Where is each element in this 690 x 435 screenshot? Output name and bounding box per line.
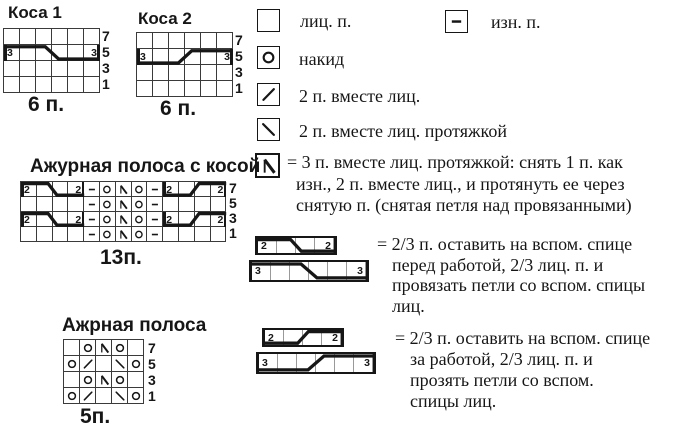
chart-cell — [68, 29, 84, 45]
chart-cell — [163, 227, 179, 242]
chart-cell — [169, 81, 185, 97]
chart-cell — [211, 197, 227, 212]
cable-front-symbol: 22 — [21, 212, 84, 227]
legend-text-line: провязать петли со вспом. спицы — [377, 275, 645, 296]
cable-end-bar — [97, 45, 100, 61]
chart-cell — [64, 340, 80, 356]
cable-digit: 2 — [332, 332, 338, 343]
row-number: 7 — [229, 181, 237, 196]
chart-cell — [195, 197, 211, 212]
cable-digit: 2 — [24, 184, 30, 195]
row-number: 5 — [148, 356, 156, 372]
cable-digit: 3 — [7, 48, 13, 59]
chart-cell — [68, 77, 84, 93]
cable-digit: 2 — [218, 184, 224, 195]
chart-cell — [21, 197, 37, 212]
legend-text-line: = 3 п. вместе лиц. протяжкой: снять 1 п.… — [287, 152, 632, 174]
chart-cell — [96, 356, 112, 372]
chart-cell — [84, 77, 100, 93]
chart-title-azhur: Ажрная полоса — [62, 315, 206, 337]
sk2p-icon — [117, 229, 129, 240]
legend-label-ssk: 2 п. вместе лиц. протяжкой — [299, 121, 507, 142]
yarn-over-icon — [82, 342, 94, 354]
chart-cell — [84, 212, 100, 227]
cable-back-symbol: 22 — [163, 182, 226, 197]
stitch-count-azhur: 5п. — [80, 405, 110, 429]
sk2p-icon — [117, 214, 129, 225]
purl-dash-icon — [149, 184, 161, 195]
chart-cell — [128, 372, 144, 388]
row-number: 1 — [229, 226, 237, 241]
legend-text-line: изн., 2 п. вместе лиц., и протянуть ее ч… — [287, 174, 632, 196]
cable-back-bar-4: 22 — [262, 328, 344, 347]
legend-text-line: снятую п. (снятая петля над провязанными… — [287, 195, 632, 217]
cable-digit: 2 — [325, 240, 331, 251]
sk2p-icon — [98, 374, 110, 386]
cable-digit: 2 — [24, 214, 30, 225]
chart-cell — [80, 340, 96, 356]
row-number: 7 — [235, 32, 243, 48]
chart-cell — [96, 388, 112, 404]
row-number: 1 — [235, 80, 243, 96]
row-numbers-kosa1: 7531 — [102, 28, 110, 92]
stitch-count-kosa2: 6 п. — [160, 97, 196, 121]
purl-dash-icon — [149, 199, 161, 210]
chart-cell — [64, 388, 80, 404]
chart-cell — [100, 212, 116, 227]
chart-cell — [80, 372, 96, 388]
row-number: 3 — [102, 60, 110, 76]
chart-cell — [52, 61, 68, 77]
ssk-backslash-icon — [114, 358, 126, 370]
legend-label-knit: лиц. п. — [300, 11, 351, 32]
cable-digit: 2 — [268, 332, 274, 343]
cable-end-bar — [230, 49, 233, 65]
ssk-backslash-icon — [114, 390, 126, 402]
legend-label-yo: накид — [299, 49, 344, 70]
chart-cell — [53, 197, 69, 212]
k2tog-slash-icon — [82, 390, 94, 402]
sk2p-description: = 3 п. вместе лиц. протяжкой: снять 1 п.… — [287, 152, 632, 217]
yarn-over-icon — [133, 199, 145, 210]
chart-cell — [20, 77, 36, 93]
sk2p-icon — [117, 184, 129, 195]
yarn-over-icon — [114, 374, 126, 386]
chart-cell — [116, 182, 132, 197]
chart-cell — [100, 197, 116, 212]
chart-cell — [217, 65, 233, 81]
chart-cell — [84, 61, 100, 77]
chart-cell — [64, 356, 80, 372]
cable-front-bar-4: 22 — [255, 236, 337, 255]
k2tog-slash-icon — [260, 86, 277, 103]
cable-digit: 3 — [357, 266, 363, 277]
chart-cell — [4, 29, 20, 45]
knitting-pattern-sheet: Коса 1 33 7531 6 п. Коса 2 33 7531 6 п. … — [0, 0, 690, 435]
cable-end-bar — [224, 182, 227, 197]
chart-cell — [201, 33, 217, 49]
chart-cell — [4, 77, 20, 93]
row-numbers-azhur-kosa: 7531 — [229, 181, 237, 241]
chart-cell — [37, 227, 53, 242]
cable-digit: 3 — [262, 358, 268, 369]
chart-cell — [169, 33, 185, 49]
cable-digit: 2 — [75, 214, 81, 225]
cable-line — [137, 49, 233, 65]
cable-digit: 2 — [166, 214, 172, 225]
chart-cell — [112, 356, 128, 372]
chart-grid-kosa1: 33 — [3, 28, 100, 93]
yarn-over-symbol — [257, 46, 280, 69]
cable-line — [4, 45, 100, 61]
chart-cell — [128, 340, 144, 356]
legend-label-k2tog: 2 п. вместе лиц. — [299, 86, 420, 107]
chart-cell — [169, 65, 185, 81]
cable-bar-row: 22 — [262, 328, 376, 347]
row-number: 3 — [229, 211, 237, 226]
chart-cell — [84, 197, 100, 212]
cable-back-symbol: 22 — [163, 212, 226, 227]
chart-cell — [137, 81, 153, 97]
chart-cell — [100, 182, 116, 197]
chart-cell — [80, 388, 96, 404]
cable-bar-row: 33 — [249, 260, 369, 282]
sk2p-icon — [117, 199, 129, 210]
cable-digit: 2 — [261, 240, 267, 251]
purl-dash-icon — [149, 229, 161, 240]
chart-cell — [128, 388, 144, 404]
row-numbers-kosa2: 7531 — [235, 32, 243, 96]
chart-cell — [147, 182, 163, 197]
chart-cell — [96, 372, 112, 388]
row-number: 3 — [235, 64, 243, 80]
legend-text-line: = 2/3 п. оставить на вспом. спице — [377, 234, 645, 255]
chart-cell — [20, 29, 36, 45]
chart-grid-kosa2: 33 — [136, 32, 233, 97]
yarn-over-icon — [114, 342, 126, 354]
chart-cell — [132, 212, 148, 227]
chart-title-kosa1: Коса 1 — [8, 3, 62, 23]
chart-cell — [68, 227, 84, 242]
chart-cell — [201, 65, 217, 81]
chart-cell — [100, 227, 116, 242]
k2tog-slash-icon — [82, 358, 94, 370]
cable-digit: 2 — [166, 184, 172, 195]
chart-cell — [217, 33, 233, 49]
chart-cell — [147, 212, 163, 227]
chart-cell — [179, 197, 195, 212]
row-number: 5 — [235, 48, 243, 64]
chart-grid-azhur — [63, 339, 144, 404]
purl-dash-icon — [86, 214, 98, 225]
chart-cell — [132, 227, 148, 242]
chart-cell — [96, 340, 112, 356]
chart-cell — [153, 33, 169, 49]
legend-text-line: за работой, 2/3 лиц. п. и — [395, 349, 650, 370]
chart-cell — [112, 388, 128, 404]
chart-cell — [116, 197, 132, 212]
chart-cell — [52, 77, 68, 93]
chart-cell — [132, 182, 148, 197]
knit-stitch-symbol — [257, 9, 280, 32]
chart-cell — [201, 81, 217, 97]
row-number: 1 — [102, 76, 110, 92]
legend-text-line: = 2/3 п. оставить на вспом. спице — [395, 328, 650, 349]
chart-cell — [153, 81, 169, 97]
stitch-count-kosa1: 6 п. — [28, 93, 64, 117]
chart-cell — [112, 340, 128, 356]
chart-cell — [116, 227, 132, 242]
legend-text-line: лиц. — [377, 296, 645, 317]
yarn-over-icon — [101, 229, 113, 240]
chart-cell — [36, 61, 52, 77]
cable-front-bar-6: 33 — [249, 260, 369, 282]
cable-digit: 3 — [224, 52, 230, 63]
purl-dash-icon — [448, 13, 465, 30]
cable-digit: 3 — [364, 358, 370, 369]
sk2p-icon — [98, 342, 110, 354]
cable-back-description: = 2/3 п. оставить на вспом. спицеза рабо… — [395, 328, 650, 412]
legend-label-purl: изн. п. — [491, 12, 541, 33]
cable-line — [252, 262, 366, 280]
row-number: 5 — [102, 44, 110, 60]
cable-digit: 2 — [75, 184, 81, 195]
stitch-count-azhur-kosa: 13п. — [100, 246, 142, 270]
yarn-over-icon — [66, 390, 78, 402]
cable-bar-row: 22 — [255, 236, 369, 255]
cable-line — [265, 330, 341, 345]
purl-dash-icon — [86, 184, 98, 195]
chart-title-azhur-kosa: Ажурная полоса с косой — [30, 156, 260, 178]
yarn-over-icon — [133, 184, 145, 195]
cable-bar-row: 33 — [256, 352, 376, 374]
yarn-over-icon — [133, 229, 145, 240]
chart-cell — [195, 227, 211, 242]
yarn-over-icon — [260, 49, 277, 66]
chart-cell — [153, 65, 169, 81]
chart-cell — [137, 33, 153, 49]
chart-cell — [36, 29, 52, 45]
cable-line — [258, 238, 334, 253]
chart-cell — [147, 227, 163, 242]
purl-stitch-symbol — [445, 10, 468, 33]
chart-title-kosa2: Коса 2 — [138, 9, 192, 29]
chart-cell — [84, 182, 100, 197]
cable-end-bar — [224, 212, 227, 227]
legend-text-line: перед работой, 2/3 лиц. п. и — [377, 255, 645, 276]
row-number: 7 — [148, 340, 156, 356]
yarn-over-icon — [66, 358, 78, 370]
chart-cell — [68, 61, 84, 77]
row-number: 1 — [148, 388, 156, 404]
cable-back-symbols: 2233 — [262, 328, 376, 379]
chart-cell — [112, 372, 128, 388]
yarn-over-icon — [130, 390, 142, 402]
cable-digit: 2 — [218, 214, 224, 225]
chart-cell — [80, 356, 96, 372]
chart-cell — [68, 197, 84, 212]
chart-cell — [185, 81, 201, 97]
chart-cell — [37, 197, 53, 212]
legend-text-line: прозять петли со вспом. — [395, 370, 650, 391]
yarn-over-icon — [82, 374, 94, 386]
chart-cell — [52, 29, 68, 45]
yarn-over-icon — [130, 358, 142, 370]
row-number: 7 — [102, 28, 110, 44]
chart-cell — [163, 197, 179, 212]
purl-dash-icon — [149, 214, 161, 225]
chart-cell — [147, 197, 163, 212]
chart-cell — [132, 197, 148, 212]
chart-grid-azhur-kosa: 22222222 — [20, 181, 226, 242]
purl-dash-icon — [86, 199, 98, 210]
cable-end-bar — [82, 212, 85, 227]
ssk-symbol — [257, 118, 280, 141]
yarn-over-icon — [101, 199, 113, 210]
cable-line — [259, 354, 373, 372]
cable-front-symbol: 22 — [21, 182, 84, 197]
cable-digit: 3 — [140, 52, 146, 63]
chart-cell — [21, 227, 37, 242]
purl-dash-icon — [86, 229, 98, 240]
row-numbers-azhur: 7531 — [148, 340, 156, 404]
chart-cell — [84, 227, 100, 242]
cable-front-symbols: 2233 — [255, 236, 369, 287]
chart-cell — [185, 65, 201, 81]
cable-front-symbol: 33 — [4, 45, 100, 61]
chart-cell — [84, 29, 100, 45]
yarn-over-icon — [133, 214, 145, 225]
chart-cell — [211, 227, 227, 242]
cable-digit: 3 — [255, 266, 261, 277]
chart-cell — [185, 33, 201, 49]
chart-cell — [179, 227, 195, 242]
chart-cell — [36, 77, 52, 93]
cable-back-bar-6: 33 — [256, 352, 376, 374]
yarn-over-icon — [101, 184, 113, 195]
chart-cell — [20, 61, 36, 77]
chart-cell — [4, 61, 20, 77]
chart-cell — [116, 212, 132, 227]
cable-end-bar — [82, 182, 85, 197]
chart-cell — [53, 227, 69, 242]
row-number: 5 — [229, 196, 237, 211]
row-number: 3 — [148, 372, 156, 388]
chart-cell — [128, 356, 144, 372]
legend-text-line: спицы лиц. — [395, 391, 650, 412]
cable-front-description: = 2/3 п. оставить на вспом. спицеперед р… — [377, 234, 645, 316]
chart-cell — [217, 81, 233, 97]
ssk-backslash-icon — [260, 121, 277, 138]
chart-cell — [137, 65, 153, 81]
cable-digit: 3 — [91, 48, 97, 59]
sk2p-icon — [259, 157, 277, 175]
k2tog-symbol — [257, 83, 280, 106]
cable-back-symbol: 33 — [137, 49, 233, 65]
yarn-over-icon — [101, 214, 113, 225]
chart-cell — [64, 372, 80, 388]
